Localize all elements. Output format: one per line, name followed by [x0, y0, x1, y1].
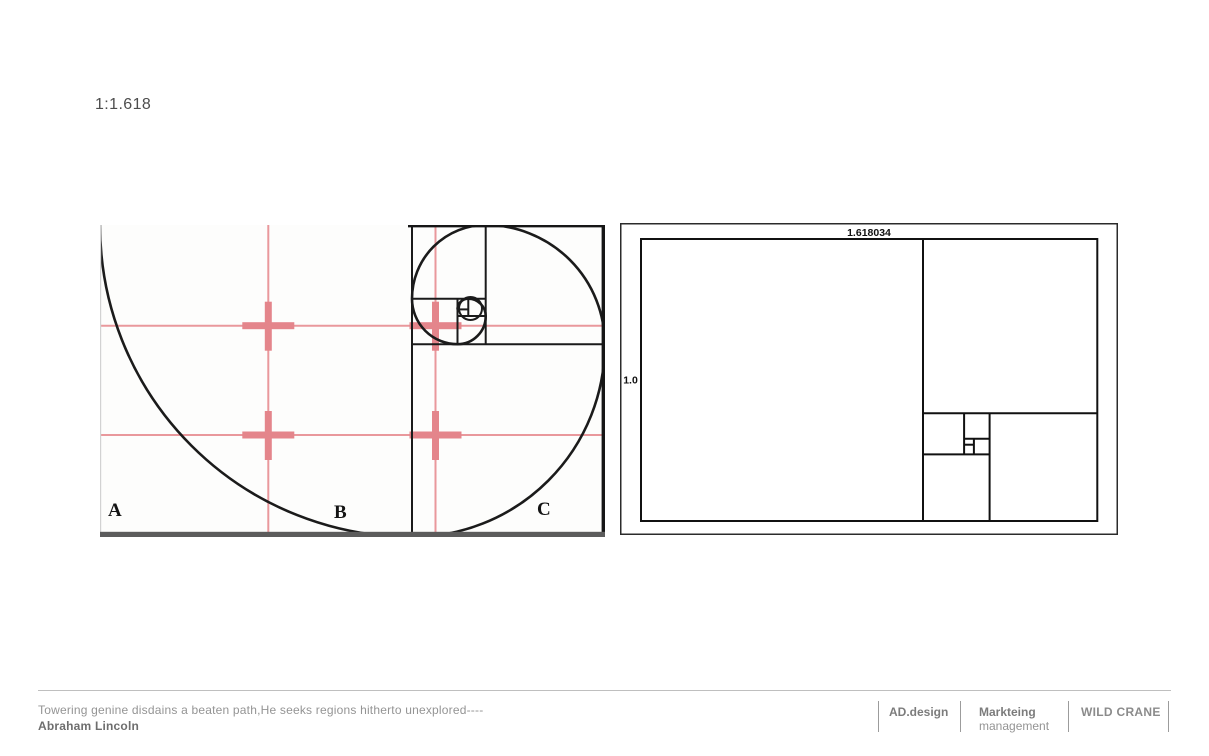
height-ratio-label: 1.0 [623, 375, 638, 387]
page-title: 1:1.618 [95, 96, 151, 114]
quote-author: Abraham Lincoln [38, 719, 483, 735]
quote-text: Towering genine disdains a beaten path,H… [38, 703, 483, 719]
brand-wild-crane: WILD CRANE [1068, 701, 1169, 732]
section-label-b: B [334, 502, 347, 523]
golden-spiral-figure: A B C [100, 225, 605, 537]
section-label-a: A [108, 500, 122, 521]
golden-rectangle-figure: 1.618034 1.0 [620, 223, 1118, 535]
brand-label: AD.design [889, 705, 960, 719]
brand-label: Markteing [979, 705, 1068, 719]
brand-marketing-management: Markteing management [960, 701, 1068, 732]
brand-label: WILD CRANE [1081, 705, 1168, 719]
figure-background [620, 223, 1118, 535]
figure-background [100, 225, 605, 537]
width-ratio-label: 1.618034 [847, 227, 891, 239]
slide-canvas: 1:1.618 [0, 0, 1209, 756]
footer-divider [38, 690, 1171, 691]
brand-ad-design: AD.design [878, 701, 960, 732]
brand-sublabel: management [979, 719, 1068, 733]
footer-quote-block: Towering genine disdains a beaten path,H… [38, 703, 483, 734]
section-label-c: C [537, 499, 551, 520]
